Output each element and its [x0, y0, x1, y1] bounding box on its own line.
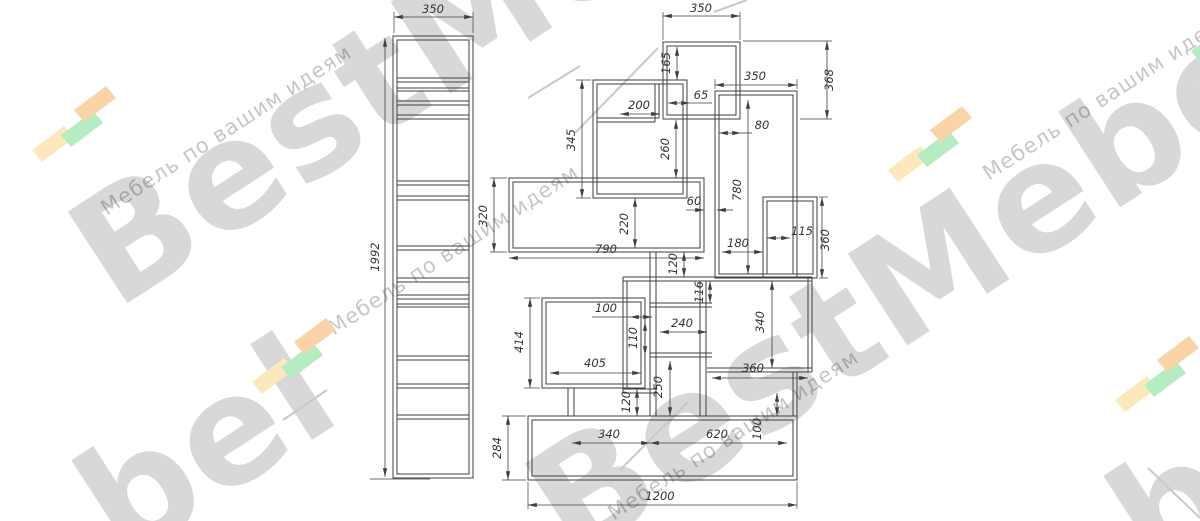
dim-front-320: 320 [476, 205, 490, 227]
dim-front-368: 368 [822, 69, 836, 91]
side-view-structure [393, 36, 473, 478]
dim-front-620: 620 [706, 427, 728, 441]
dim-front-65: 65 [694, 88, 709, 102]
dim-front-110: 110 [626, 327, 640, 349]
dim-front-250: 250 [651, 376, 665, 398]
dim-front-100a: 100 [595, 301, 617, 315]
dim-front-260: 260 [658, 138, 672, 160]
dim-front-180: 180 [727, 236, 749, 250]
dim-front-360e: 360 [818, 229, 832, 251]
dim-front-350b: 350 [744, 69, 766, 83]
dim-front-60: 60 [687, 194, 702, 208]
dim-side-height: 1992 [368, 242, 382, 271]
dim-front-340a: 340 [753, 311, 767, 333]
technical-drawing: 350 1992 [0, 0, 1200, 521]
front-view-structure [509, 42, 817, 480]
side-view: 350 1992 [368, 2, 473, 479]
dim-front-1200: 1200 [645, 489, 674, 503]
dim-front-top-width: 350 [690, 1, 712, 15]
dim-front-790: 790 [595, 242, 617, 256]
dim-front-360b: 360 [742, 361, 764, 375]
dim-front-100b: 100 [750, 418, 764, 440]
dim-front-220: 220 [617, 213, 631, 235]
dim-front-116: 116 [692, 281, 706, 303]
dim-front-345: 345 [564, 129, 578, 151]
dim-front-780: 780 [730, 179, 744, 201]
dim-front-240: 240 [671, 316, 693, 330]
dim-front-200: 200 [628, 98, 650, 112]
dim-side-width: 350 [422, 2, 444, 16]
dim-front-284: 284 [490, 437, 504, 459]
dim-front-120b: 120 [619, 391, 633, 413]
dim-front-340b: 340 [598, 427, 620, 441]
dim-front-115: 115 [791, 224, 813, 238]
dim-front-165: 165 [659, 52, 673, 74]
dim-front-120a: 120 [666, 253, 680, 275]
dim-front-80: 80 [755, 118, 770, 132]
dim-front-414: 414 [512, 331, 526, 353]
blueprint-page: BestMebel BestMebel bel ebel Мебель по в… [0, 0, 1200, 521]
side-view-dimensions: 350 1992 [368, 2, 473, 479]
dim-front-405: 405 [584, 356, 606, 370]
